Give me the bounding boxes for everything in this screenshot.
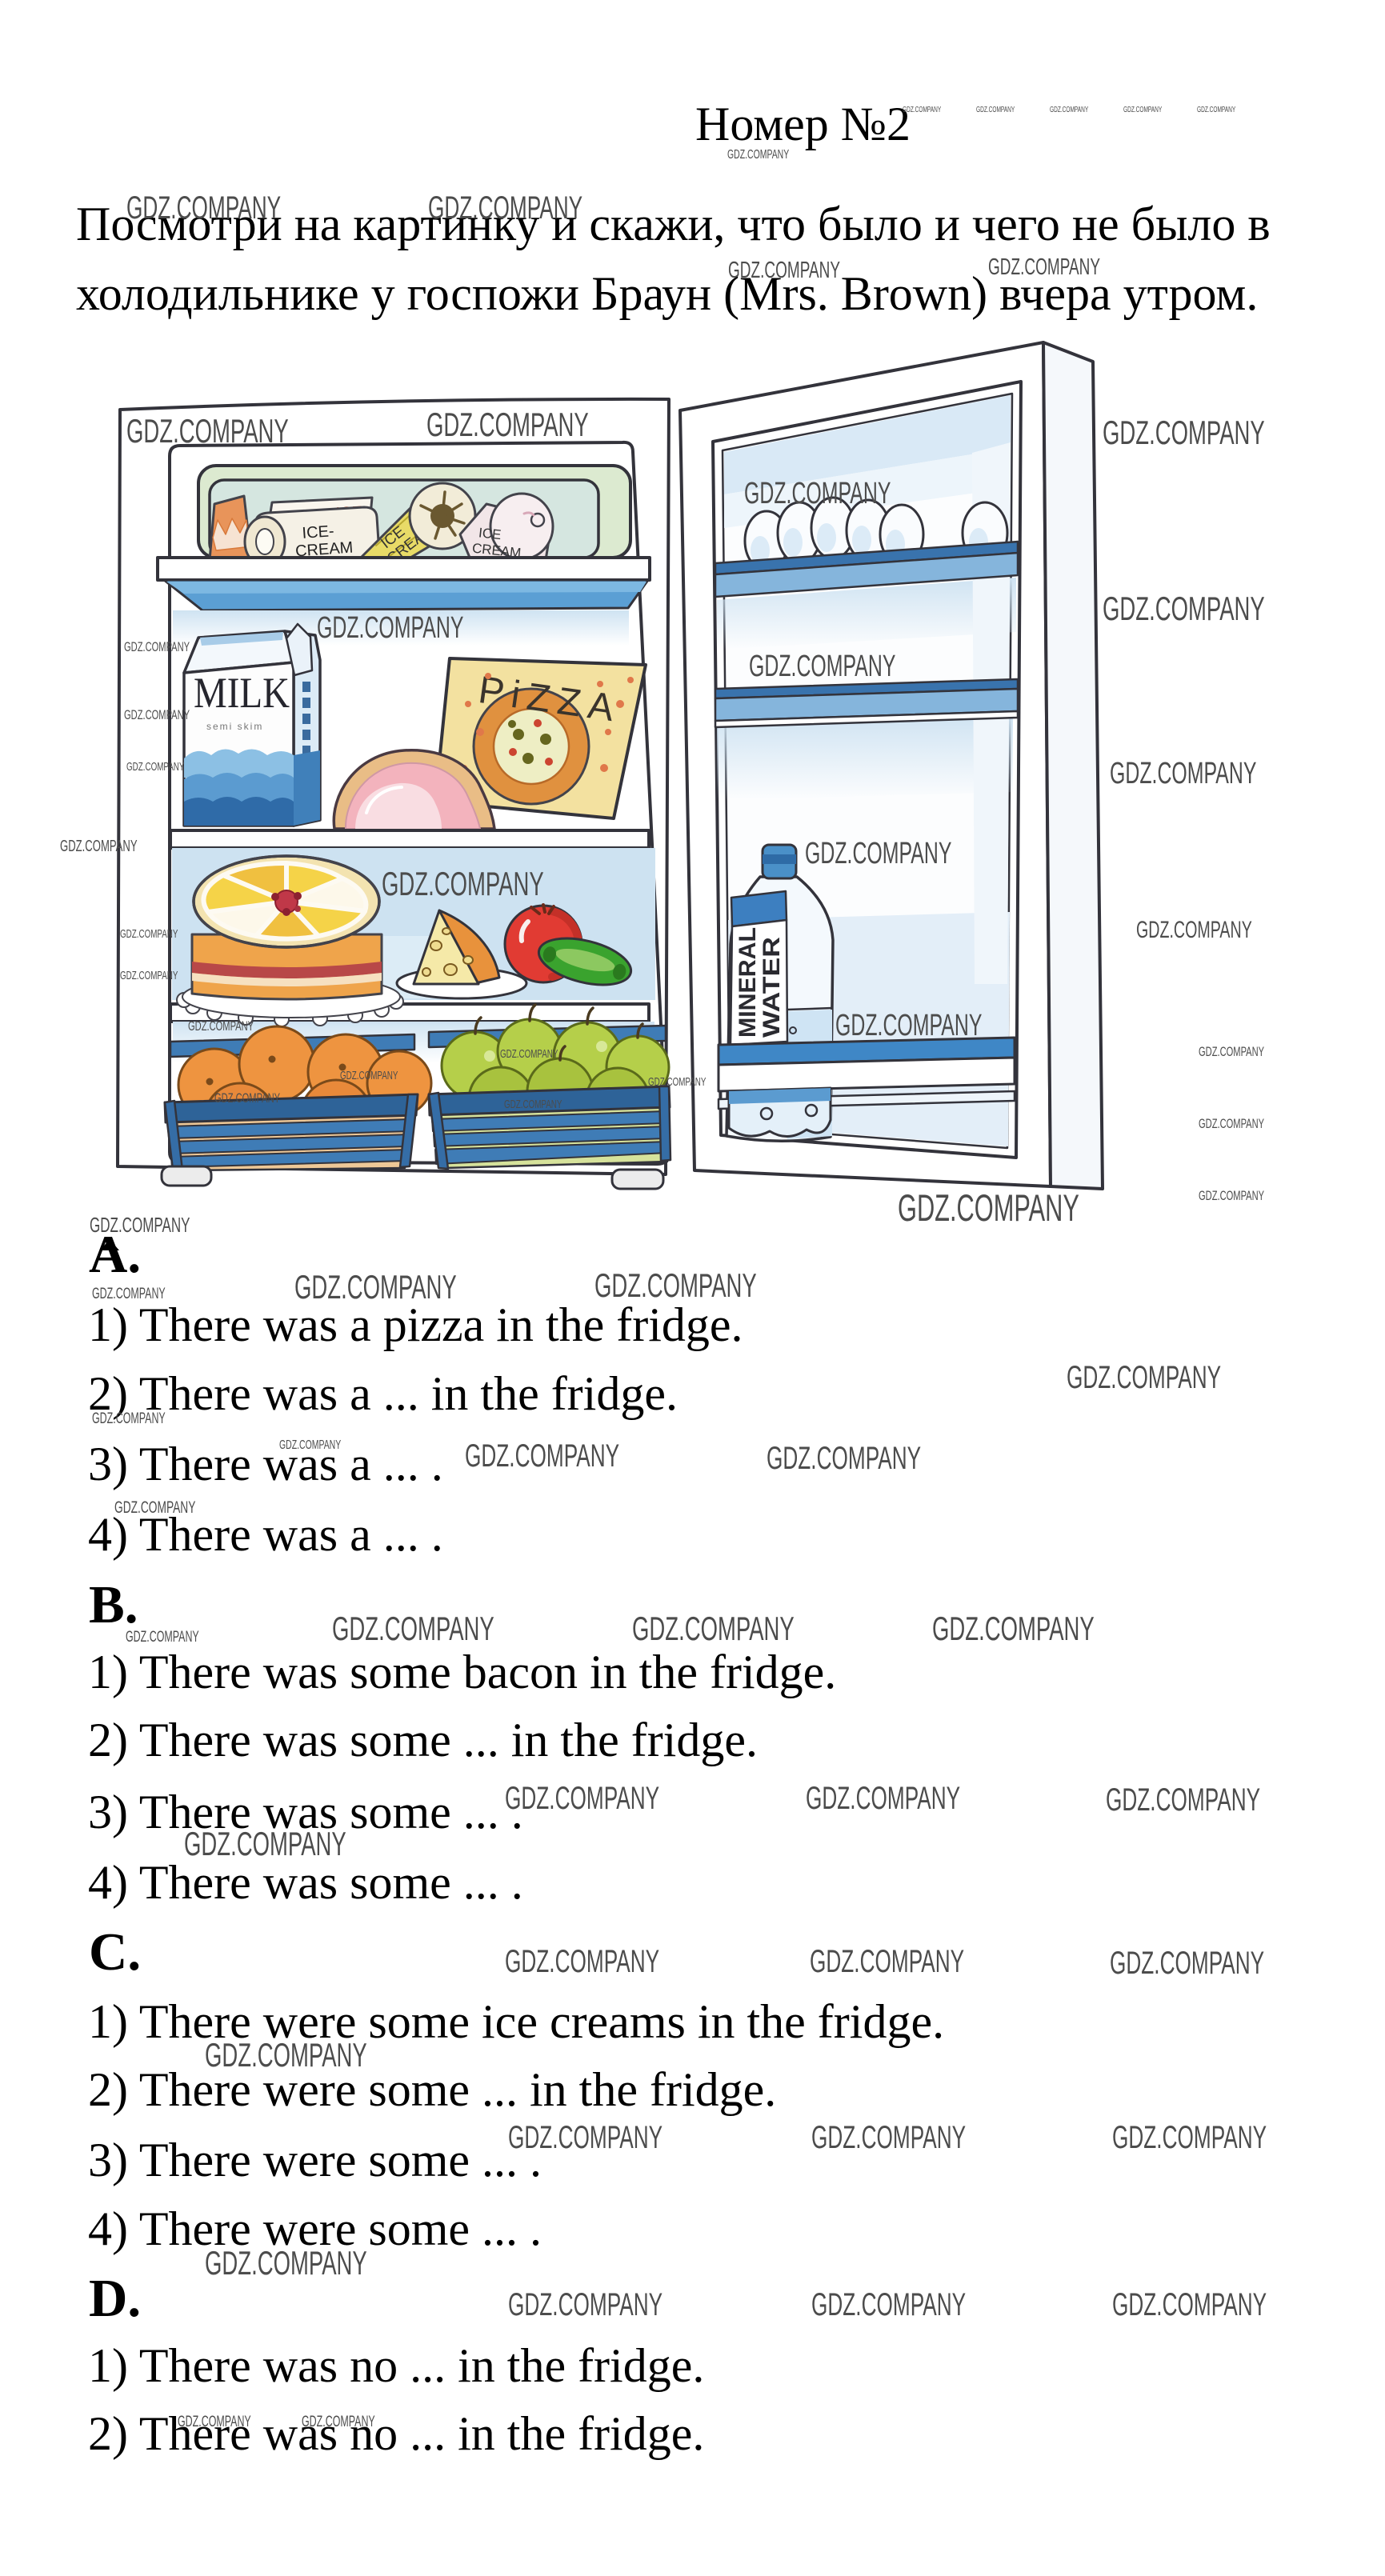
svg-text:MINERAL: MINERAL — [735, 927, 761, 1038]
svg-text:ICE-: ICE- — [302, 522, 334, 542]
svg-text:semi skim: semi skim — [206, 721, 263, 732]
svg-text:MILK: MILK — [194, 669, 290, 717]
svg-text:ICE: ICE — [478, 525, 502, 542]
svg-text:WATER: WATER — [759, 937, 785, 1038]
